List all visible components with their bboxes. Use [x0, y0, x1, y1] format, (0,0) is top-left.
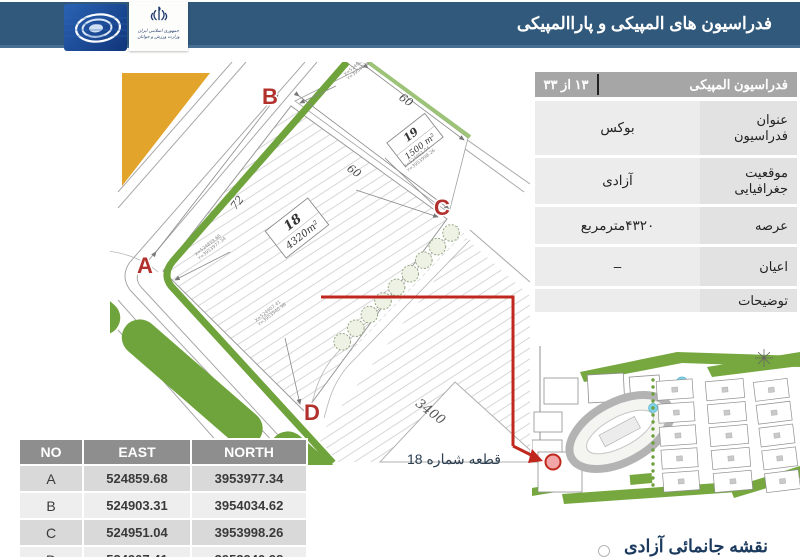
ministry-line-1: جمهوری اسلامی ایران — [132, 28, 185, 33]
info-value: بوکس — [535, 101, 700, 155]
coords-cell: 524951.04 — [84, 520, 190, 545]
coords-cell: C — [20, 520, 82, 545]
info-row: – اعیان — [535, 247, 797, 286]
coords-cell: 524903.31 — [84, 493, 190, 518]
info-rows: بوکس عنوان فدراسیون آزادی موقعیت جغرافیا… — [535, 101, 797, 312]
ministry-logo: جمهوری اسلامی ایران وزارت ورزش و جوانان — [129, 2, 188, 51]
coords-table-row: A524859.683953977.34 — [20, 466, 306, 491]
point-D: D — [304, 400, 320, 425]
info-row: ۴۳۲۰مترمربع عرصه — [535, 207, 797, 244]
point-C: C — [434, 195, 450, 220]
federation-info-panel: ۱۳ از ۳۳ فدراسیون المپیکی بوکس عنوان فدر… — [535, 72, 797, 315]
site-location-minimap — [532, 336, 800, 520]
coordinates-table-header: NOEASTNORTH — [20, 440, 306, 464]
info-panel-header: ۱۳ از ۳۳ فدراسیون المپیکی — [535, 72, 797, 97]
coords-table-row: C524951.043953998.26 — [20, 520, 306, 545]
info-label: عرصه — [700, 207, 797, 244]
page-indicator: ۱۳ از ۳۳ — [535, 74, 599, 95]
point-B: B — [262, 84, 278, 109]
coords-cell: 3953998.26 — [192, 520, 306, 545]
ministry-line-2: وزارت ورزش و جوانان — [132, 34, 185, 39]
info-row: توضیحات — [535, 289, 797, 312]
info-label: اعیان — [700, 247, 797, 286]
coordinates-table-body: A524859.683953977.34B524903.313954034.62… — [20, 466, 306, 557]
caption-text: نقشه جانمائی آزادی — [624, 536, 768, 556]
coords-header-cell: NO — [20, 440, 82, 464]
map-caption: نقشه جانمائی آزادی — [596, 536, 796, 557]
info-row: آزادی موقعیت جغرافیایی — [535, 158, 797, 204]
sports-company-logo — [64, 4, 127, 51]
coordinates-table: NOEASTNORTH A524859.683953977.34B524903.… — [18, 438, 308, 557]
plot-callout-label: قطعه شماره 18 — [398, 451, 510, 468]
caption-ring-icon — [598, 545, 610, 557]
info-label: توضیحات — [700, 289, 797, 312]
info-value: – — [535, 247, 700, 286]
minimap-plot-grid — [656, 378, 800, 492]
coords-cell: 524907.41 — [84, 547, 190, 557]
info-value: آزادی — [535, 158, 700, 204]
info-panel-title: فدراسیون المپیکی — [599, 77, 797, 93]
coords-cell: A — [20, 466, 82, 491]
coords-table-row: D524907.413953940.98 — [20, 547, 306, 557]
coords-cell: 3953977.34 — [192, 466, 306, 491]
info-label: موقعیت جغرافیایی — [700, 158, 797, 204]
survey-drawing: 3400 — [110, 62, 530, 465]
orange-block — [122, 73, 210, 186]
coords-cell: 524859.68 — [84, 466, 190, 491]
coords-header-cell: EAST — [84, 440, 190, 464]
page-title: فدراسیون های المپیکی و پاراالمپیکی — [517, 2, 772, 45]
coords-table-row: B524903.313954034.62 — [20, 493, 306, 518]
iran-emblem-icon — [150, 5, 168, 23]
info-value — [535, 289, 700, 312]
minimap-green-patch — [630, 473, 653, 485]
coords-cell: 3954034.62 — [192, 493, 306, 518]
coords-cell: B — [20, 493, 82, 518]
slide-page: فدراسیون های المپیکی و پاراالمپیکی — [0, 0, 800, 557]
info-label: عنوان فدراسیون — [700, 101, 797, 155]
point-A: A — [137, 253, 153, 278]
coords-cell: D — [20, 547, 82, 557]
stadium-rings-icon — [64, 4, 127, 51]
info-value: ۴۳۲۰مترمربع — [535, 207, 700, 244]
coords-header-cell: NORTH — [192, 440, 306, 464]
info-row: بوکس عنوان فدراسیون — [535, 101, 797, 155]
coords-cell: 3953940.98 — [192, 547, 306, 557]
